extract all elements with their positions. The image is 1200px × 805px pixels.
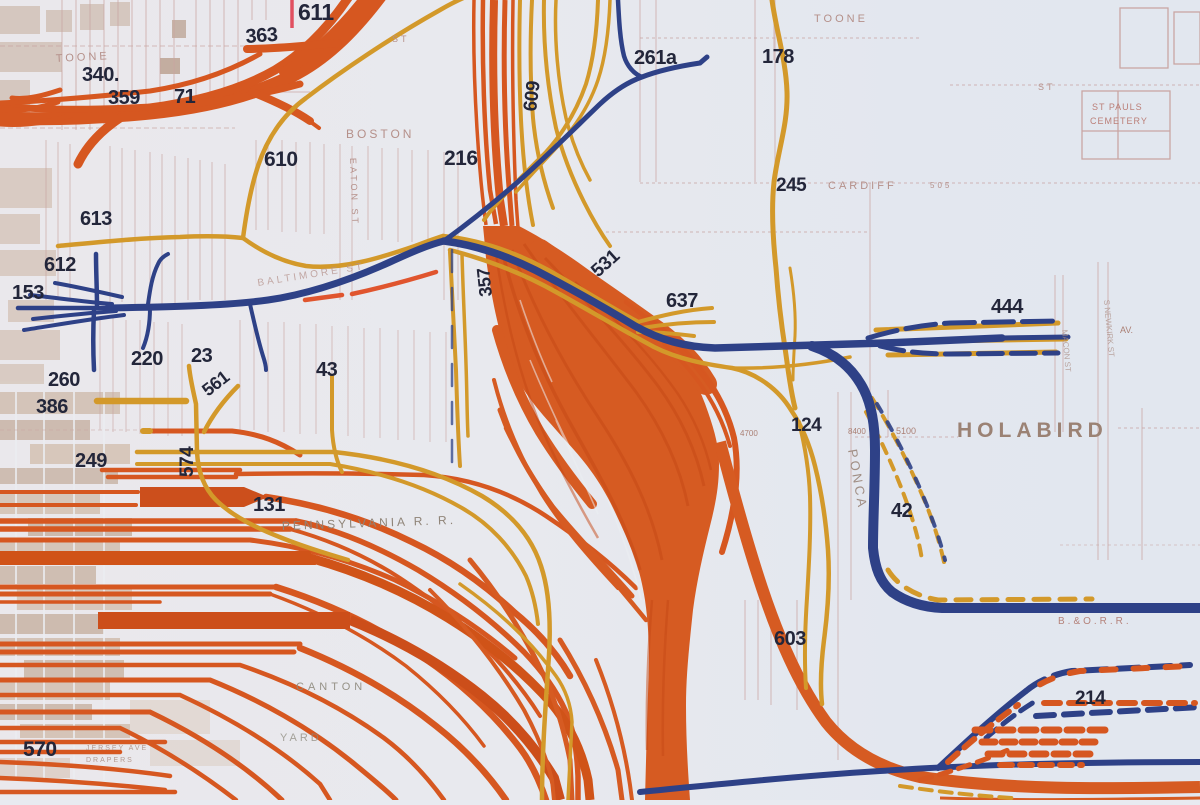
svg-text:574: 574 [177, 446, 198, 477]
svg-text:357: 357 [473, 267, 496, 298]
svg-text:613: 613 [80, 208, 112, 230]
svg-text:612: 612 [44, 254, 76, 276]
svg-text:5100: 5100 [896, 426, 916, 436]
svg-text:610: 610 [264, 148, 298, 171]
svg-text:261a: 261a [634, 47, 678, 69]
svg-text:43: 43 [316, 359, 338, 381]
svg-text:4700: 4700 [740, 429, 758, 438]
svg-text:B.&O.R.R.: B.&O.R.R. [1058, 616, 1132, 627]
svg-text:359: 359 [108, 87, 140, 109]
svg-text:609: 609 [520, 80, 545, 113]
svg-text:249: 249 [75, 450, 107, 472]
svg-text:178: 178 [762, 46, 794, 68]
svg-text:386: 386 [36, 396, 68, 418]
svg-text:216: 216 [444, 147, 478, 170]
svg-text:JERSEY AVE: JERSEY AVE [86, 745, 148, 752]
svg-text:23: 23 [191, 345, 213, 367]
svg-text:570: 570 [23, 738, 57, 761]
svg-text:220: 220 [131, 348, 163, 370]
svg-text:CANTON: CANTON [296, 681, 366, 693]
svg-text:71: 71 [174, 86, 196, 108]
svg-text:603: 603 [774, 628, 806, 650]
svg-text:CEMETERY: CEMETERY [1090, 116, 1148, 126]
svg-text:HOLABIRD: HOLABIRD [957, 419, 1108, 442]
svg-text:TOONE: TOONE [814, 13, 868, 25]
svg-text:CARDIFF: CARDIFF [828, 180, 897, 192]
svg-text:ST PAULS: ST PAULS [1092, 102, 1143, 112]
svg-text:505: 505 [930, 181, 952, 190]
svg-text:DRAPERS: DRAPERS [86, 757, 134, 764]
svg-text:245: 245 [776, 175, 807, 196]
svg-text:340.: 340. [82, 64, 119, 86]
svg-text:124: 124 [791, 415, 822, 436]
svg-text:42: 42 [891, 500, 913, 522]
svg-text:131: 131 [253, 494, 285, 516]
svg-text:BOSTON: BOSTON [346, 127, 414, 141]
svg-text:YARD: YARD [280, 732, 322, 744]
svg-text:ST: ST [392, 34, 410, 44]
svg-text:ST: ST [1038, 82, 1056, 92]
svg-text:444: 444 [991, 296, 1024, 318]
svg-text:214: 214 [1075, 688, 1106, 709]
svg-text:363: 363 [245, 24, 279, 48]
svg-text:153: 153 [12, 282, 44, 304]
svg-text:637: 637 [666, 290, 698, 312]
svg-text:8400: 8400 [848, 427, 866, 436]
svg-text:611: 611 [298, 0, 334, 25]
svg-text:260: 260 [48, 369, 80, 391]
svg-text:AV.: AV. [1120, 325, 1133, 335]
